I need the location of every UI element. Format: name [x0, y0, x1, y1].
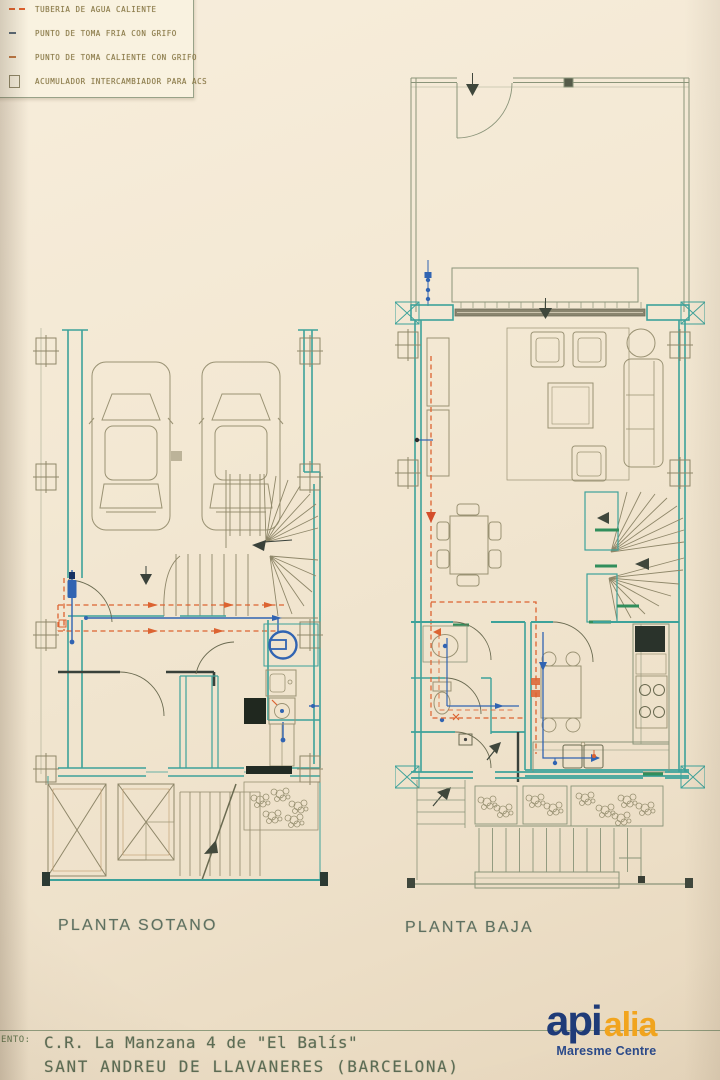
stove [244, 698, 266, 724]
armchair [573, 332, 606, 367]
logo-subtitle: Maresme Centre [546, 1045, 656, 1058]
door-swings [68, 580, 234, 716]
ottoman [572, 446, 606, 481]
apialia-logo: api alia Maresme Centre [546, 1000, 656, 1058]
legend-row: ACUMULADOR INTERCAMBIADOR PARA ACS [9, 69, 193, 93]
kitchen-sink [563, 742, 603, 768]
logo-api-text: api [546, 1000, 601, 1042]
spiral-staircase [158, 470, 318, 618]
flow-arrow [140, 566, 152, 585]
structural-column [681, 766, 705, 788]
car [89, 362, 173, 530]
door-swing [453, 622, 491, 660]
stair-landing [585, 492, 618, 550]
stair-direction-arrow [635, 558, 649, 570]
hot-water-pipe [439, 634, 515, 710]
project-location: SANT ANDREU DE LLAVANERES (BARCELONA) [44, 1057, 460, 1076]
hot-tap-marker [433, 628, 441, 636]
bathroom [411, 622, 531, 770]
stove [636, 676, 667, 728]
living-room-furniture [427, 328, 663, 481]
kitchen-table [541, 652, 581, 732]
cold-tap-symbol [9, 32, 35, 34]
hot-tap-marker [531, 678, 540, 685]
water-valve [68, 580, 77, 598]
accumulator-symbol [9, 75, 35, 88]
legend-row: TUBERIA DE AGUA CALIENTE [9, 0, 193, 21]
hot-water-pipe [431, 626, 523, 718]
structural-columns [395, 329, 693, 489]
utility-fixtures [244, 670, 296, 724]
baja-plan-label: PLANTA BAJA [405, 919, 534, 937]
cabinet [427, 338, 449, 406]
wall-meter-box [564, 78, 573, 87]
round-table [627, 329, 655, 357]
structural-column [395, 766, 419, 788]
stair-direction-arrow [204, 840, 218, 854]
light-well [48, 784, 106, 876]
hot-tap-marker [531, 690, 540, 697]
planter-vegetation [244, 782, 318, 830]
dining-table [437, 504, 501, 586]
cold-water-pipes [68, 570, 320, 742]
stair-direction-arrow [597, 512, 609, 524]
stair-direction-arrow [489, 742, 501, 754]
hot-tap-symbol [9, 56, 35, 58]
cabinet [427, 410, 449, 476]
cold-water-pipe [543, 632, 599, 758]
flow-arrow [426, 512, 436, 523]
sotano-floor-plan [28, 324, 344, 904]
armchair [531, 332, 564, 367]
toilet-tank [433, 682, 451, 691]
door-swing [553, 622, 593, 662]
legend-item-label: PUNTO DE TOMA CALIENTE CON GRIFO [35, 53, 197, 62]
project-title: C.R. La Manzana 4 de "El Balís" [44, 1033, 358, 1052]
door-swing [455, 732, 491, 768]
legend-item-label: ACUMULADOR INTERCAMBIADOR PARA ACS [35, 77, 207, 86]
sofa [624, 359, 663, 467]
legend-box: TUBERIA DE AGUA CALIENTE PUNTO DE TOMA F… [0, 0, 194, 98]
hot-water-pipe-symbol [9, 8, 35, 10]
title-block-field-label: ENTO: [1, 1035, 31, 1045]
planter-vegetation [475, 786, 663, 826]
baja-floor-plan [395, 66, 705, 906]
patio-stairs [180, 784, 260, 880]
cold-water-riser [425, 260, 432, 306]
terrace-deck [452, 268, 638, 302]
stair-direction-arrow [252, 540, 266, 551]
door-swing [445, 678, 481, 714]
legend-item-label: PUNTO DE TOMA FRIA CON GRIFO [35, 29, 177, 38]
toilet [434, 692, 450, 714]
fridge [635, 626, 665, 652]
floor-drain [171, 451, 182, 461]
coffee-table [548, 383, 593, 428]
garage-cars [89, 362, 283, 530]
garden-walls [411, 73, 689, 312]
hot-water-riser [415, 356, 436, 626]
pergola [475, 826, 663, 888]
rear-patio [395, 766, 705, 888]
sotano-plan-label: PLANTA SOTANO [58, 917, 218, 935]
hot-tap-marker [453, 714, 459, 720]
kitchen [431, 602, 689, 776]
rear-patio [42, 782, 328, 886]
hot-water-pipes [58, 578, 284, 634]
legend-row: PUNTO DE TOMA CALIENTE CON GRIFO [9, 45, 193, 69]
sliding-door [246, 766, 292, 774]
legend-row: PUNTO DE TOMA FRIA CON GRIFO [9, 21, 193, 45]
rug [507, 328, 629, 480]
entry-arrow [466, 84, 479, 96]
car [199, 362, 283, 530]
entry-hall [411, 732, 525, 782]
logo-alia-text: alia [604, 1008, 657, 1042]
perimeter-walls [415, 320, 685, 772]
legend-item-label: TUBERIA DE AGUA CALIENTE [35, 5, 157, 14]
staircase [585, 492, 684, 622]
